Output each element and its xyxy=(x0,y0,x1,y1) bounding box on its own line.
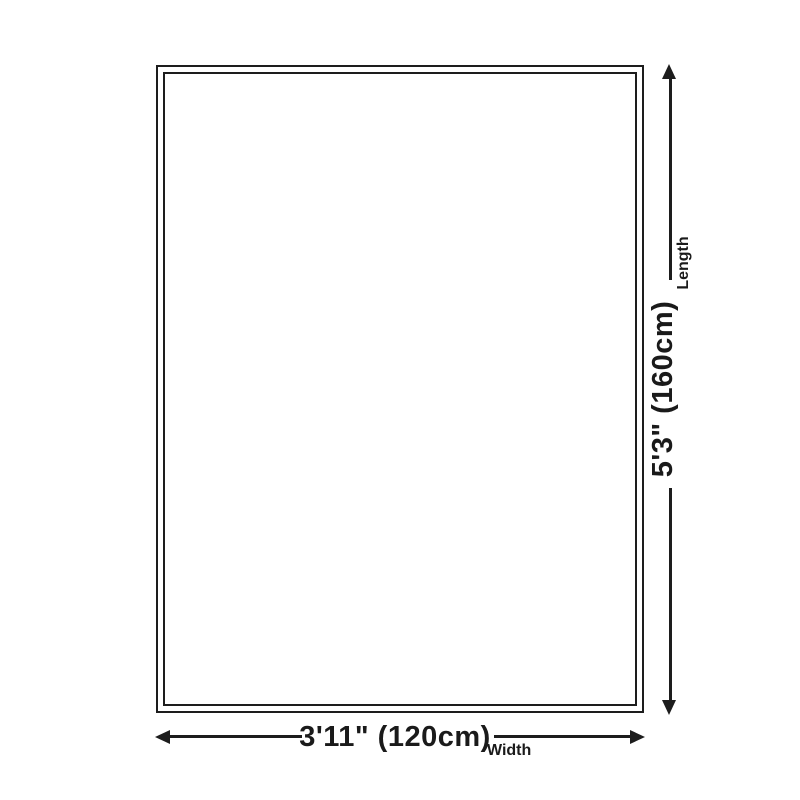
width-value: 3'11" (120cm) xyxy=(295,722,495,752)
length-value: 5'3" (160cm) xyxy=(647,279,679,499)
length-arrow-line-bottom xyxy=(669,488,672,701)
arrow-left-icon xyxy=(155,730,170,744)
length-arrow-line-top xyxy=(669,77,672,280)
arrow-down-icon xyxy=(662,700,676,715)
arrow-right-icon xyxy=(630,730,645,744)
width-arrow-line-right xyxy=(494,735,631,738)
rug-outline-inner xyxy=(163,72,637,706)
width-label: Width xyxy=(487,742,531,760)
rug-outline-outer xyxy=(156,65,644,713)
dimension-diagram: Length 5'3" (160cm) 3'11" (120cm) Width xyxy=(0,0,800,800)
width-arrow-line-left xyxy=(169,735,302,738)
